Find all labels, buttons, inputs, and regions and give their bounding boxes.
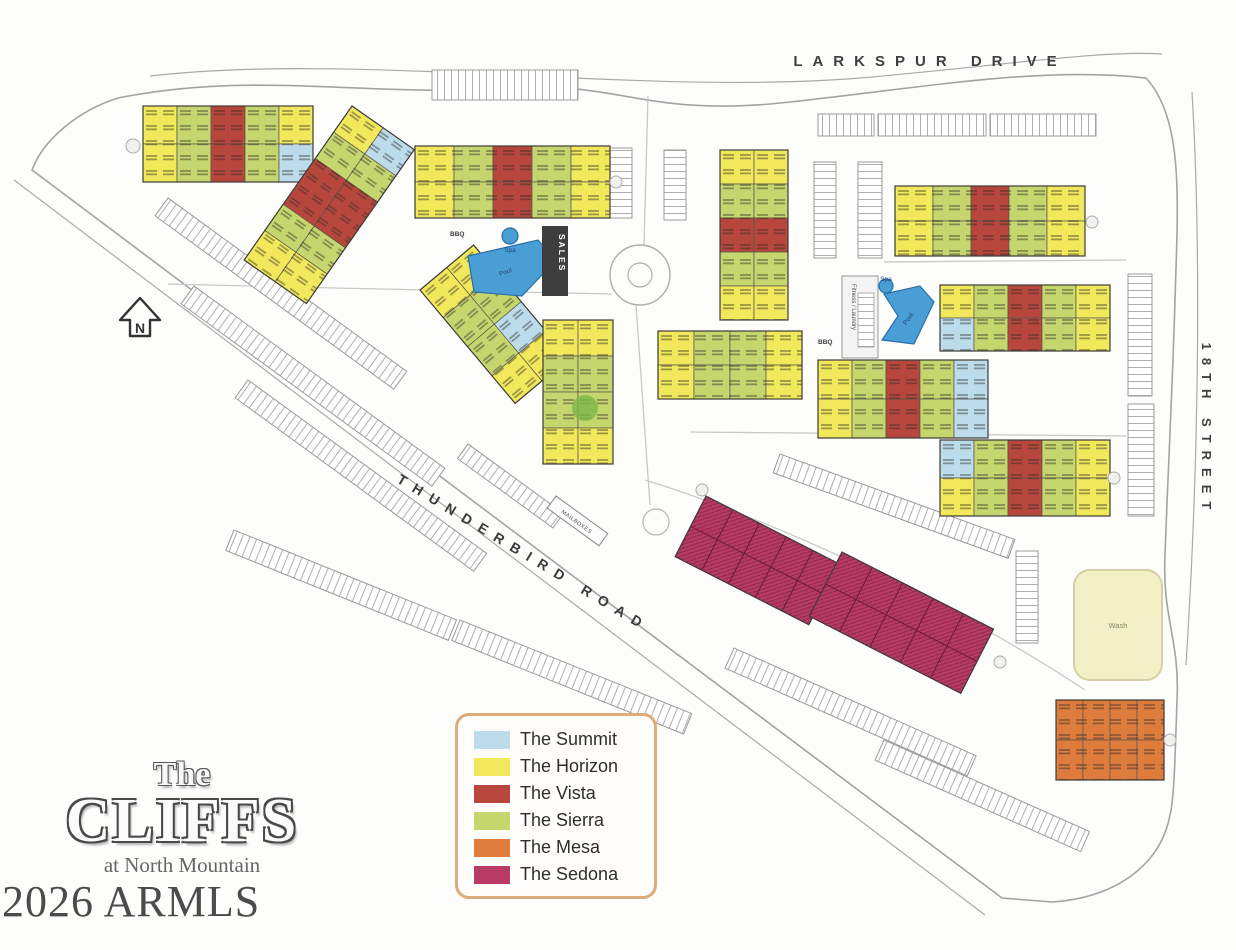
mesa-swatch	[474, 839, 510, 857]
tree-green	[572, 395, 598, 421]
legend-item-vista: The Vista	[474, 780, 654, 807]
building-north-center	[415, 146, 610, 218]
spa-label-1: Spa	[504, 247, 516, 254]
fitness-label: Fitness / Laundry	[850, 284, 856, 330]
building-mid-south	[658, 331, 802, 399]
sales-label: SALES	[557, 234, 567, 272]
legend-item-summit: The Summit	[474, 726, 654, 753]
summit-swatch	[474, 731, 510, 749]
horizon-label: The Horizon	[520, 756, 618, 777]
larkspur-drive-label: LARKSPUR DRIVE	[793, 53, 1066, 70]
sedona-swatch	[474, 866, 510, 884]
logo-cliffs: CLIFFS	[64, 792, 300, 851]
cul-de-sac	[643, 509, 669, 535]
mesa-label: The Mesa	[520, 837, 600, 858]
legend: The Summit The Horizon The Vista The Sie…	[455, 713, 657, 899]
bbq-label-2: BBQ	[818, 339, 832, 346]
logo-tagline: at North Mountain	[64, 853, 300, 878]
legend-item-sedona: The Sedona	[474, 861, 654, 888]
sierra-label: The Sierra	[520, 810, 604, 831]
legend-item-mesa: The Mesa	[474, 834, 654, 861]
building-east-mid	[940, 285, 1110, 351]
building-mesa	[1056, 700, 1164, 780]
eighteenth-street-label: 18TH STREET	[1199, 343, 1214, 518]
vista-swatch	[474, 785, 510, 803]
north-arrow: N	[120, 298, 160, 336]
building-row-west	[143, 106, 313, 182]
sedona-label: The Sedona	[520, 864, 618, 885]
bbq-label-1: BBQ	[450, 231, 464, 238]
north-label: N	[135, 320, 145, 336]
summit-label: The Summit	[520, 729, 617, 750]
building-southeast	[940, 440, 1110, 516]
community-logo: The CLIFFS at North Mountain	[64, 758, 300, 878]
spa-label-2: Spa	[880, 276, 892, 283]
building-northeast	[895, 186, 1085, 256]
wash-label: Wash	[1109, 621, 1128, 630]
legend-item-horizon: The Horizon	[474, 753, 654, 780]
sierra-swatch	[474, 812, 510, 830]
building-east-lower	[818, 360, 988, 438]
vista-label: The Vista	[520, 783, 596, 804]
building-vertical-mid	[720, 150, 788, 320]
horizon-swatch	[474, 758, 510, 776]
legend-item-sierra: The Sierra	[474, 807, 654, 834]
spa-1	[502, 228, 518, 244]
building-vertical-center	[543, 320, 613, 464]
wash-area: Wash	[1074, 570, 1162, 680]
site-plan: MAILBOXES	[0, 0, 1236, 950]
watermark: 2026 ARMLS	[2, 876, 260, 927]
